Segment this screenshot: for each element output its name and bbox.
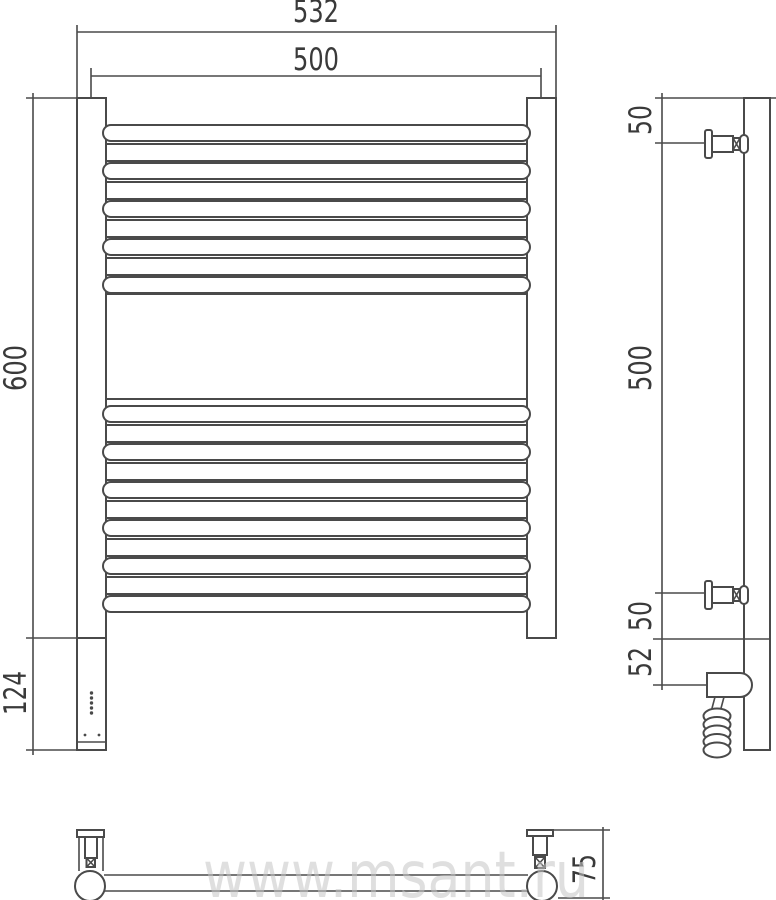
drawing-canvas: 532 500 600 124 xyxy=(0,0,776,900)
front-view: 532 500 600 124 xyxy=(0,0,556,755)
rung-bar xyxy=(103,482,530,498)
rung-bar xyxy=(103,520,530,536)
dim-label-600: 600 xyxy=(0,345,34,391)
side-wall-brackets xyxy=(705,130,748,609)
rung-band xyxy=(106,144,527,161)
dim-label-50-bottom: 50 xyxy=(623,601,659,631)
rung-bar xyxy=(103,125,530,141)
rung-band xyxy=(106,539,527,556)
bracket-plate-left xyxy=(77,830,104,837)
rungs xyxy=(103,125,530,612)
dim-label-500-side: 500 xyxy=(623,345,659,391)
screw-dot xyxy=(84,734,87,737)
dim-rail-width: 500 xyxy=(91,42,541,97)
bottom-left-collector xyxy=(75,830,105,900)
rung-band-center xyxy=(106,294,527,399)
rung-bar xyxy=(103,163,530,179)
right-collector xyxy=(527,98,556,638)
rung-bar xyxy=(103,558,530,574)
rung-bar xyxy=(103,444,530,460)
left-collector xyxy=(77,98,106,638)
led-dot xyxy=(90,701,93,704)
bracket-knob xyxy=(740,586,748,604)
rung-band xyxy=(106,425,527,442)
rung-bar xyxy=(103,239,530,255)
dim-label-124: 124 xyxy=(0,671,34,715)
rung-band xyxy=(106,501,527,518)
bracket-flange xyxy=(705,581,712,609)
rung-band xyxy=(106,463,527,480)
collector-circle-left xyxy=(75,871,105,900)
towel-rail-technical-drawing: 532 500 600 124 xyxy=(0,0,776,900)
bracket-arm xyxy=(712,587,733,603)
cable-coil xyxy=(704,743,731,758)
bracket-arm xyxy=(712,136,733,152)
rung-bar xyxy=(103,277,530,293)
rung-band xyxy=(106,220,527,237)
dim-label-532: 532 xyxy=(293,0,339,30)
rung-band xyxy=(106,182,527,199)
led-dot xyxy=(90,691,93,694)
bracket-knob xyxy=(740,135,748,153)
electric-housing xyxy=(77,638,106,750)
screw-dot xyxy=(98,734,101,737)
rung-bar xyxy=(103,201,530,217)
electric-unit-body xyxy=(707,673,752,697)
rung-band xyxy=(106,577,527,594)
led-dot xyxy=(90,696,93,699)
side-collector-tube xyxy=(744,98,770,750)
rung-band xyxy=(106,258,527,275)
dim-label-500-front: 500 xyxy=(293,42,339,78)
dim-label-52: 52 xyxy=(623,647,659,677)
led-dot xyxy=(90,706,93,709)
spiral-cable xyxy=(704,709,731,758)
rung-bar xyxy=(103,596,530,612)
bracket-stem-left xyxy=(85,837,97,858)
dim-label-50-top: 50 xyxy=(623,105,659,135)
bracket-flange xyxy=(705,130,712,158)
rung-bar xyxy=(103,406,530,422)
led-dot xyxy=(90,711,93,714)
watermark-text: www.msant.ru xyxy=(203,839,589,900)
side-view: 50 500 50 52 xyxy=(623,93,776,758)
